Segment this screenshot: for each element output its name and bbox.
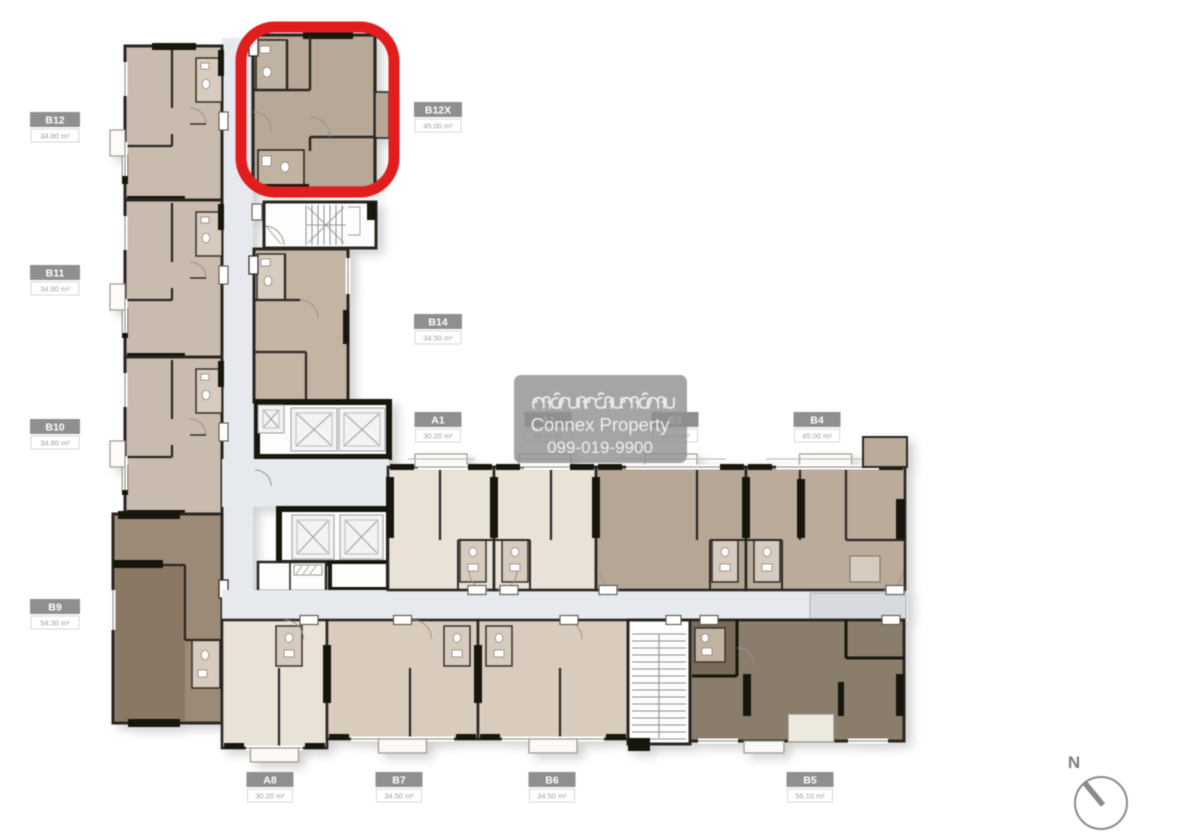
svg-text:B4: B4 xyxy=(810,415,824,427)
svg-text:34.50 m²: 34.50 m² xyxy=(423,334,453,343)
svg-text:B10: B10 xyxy=(45,422,64,434)
svg-text:B9: B9 xyxy=(48,602,62,614)
svg-text:B14: B14 xyxy=(428,317,447,329)
svg-text:A1: A1 xyxy=(431,415,445,427)
svg-text:099-019-9900: 099-019-9900 xyxy=(547,438,653,457)
svg-text:A8: A8 xyxy=(263,775,277,787)
svg-text:B12: B12 xyxy=(45,115,64,127)
svg-text:30.20 m²: 30.20 m² xyxy=(255,792,285,801)
svg-text:B11: B11 xyxy=(46,268,65,280)
svg-text:34.50 m²: 34.50 m² xyxy=(384,792,414,801)
svg-text:B12X: B12X xyxy=(425,105,451,117)
svg-text:54.30 m²: 54.30 m² xyxy=(40,619,70,628)
svg-text:B7: B7 xyxy=(392,775,406,787)
svg-text:45.00 m²: 45.00 m² xyxy=(802,432,832,441)
svg-text:56.10 m²: 56.10 m² xyxy=(795,792,825,801)
svg-text:34.80 m²: 34.80 m² xyxy=(40,132,70,141)
svg-text:B6: B6 xyxy=(545,775,559,787)
svg-text:30.20 m²: 30.20 m² xyxy=(423,432,453,441)
svg-text:34.80 m²: 34.80 m² xyxy=(40,439,70,448)
svg-text:45.00 m²: 45.00 m² xyxy=(423,122,453,131)
svg-text:34.50 m²: 34.50 m² xyxy=(537,792,567,801)
svg-text:B5: B5 xyxy=(803,775,817,787)
svg-text:N: N xyxy=(1068,753,1080,772)
svg-text:Connex Property: Connex Property xyxy=(531,414,671,435)
svg-text:34.80 m²: 34.80 m² xyxy=(40,285,70,294)
